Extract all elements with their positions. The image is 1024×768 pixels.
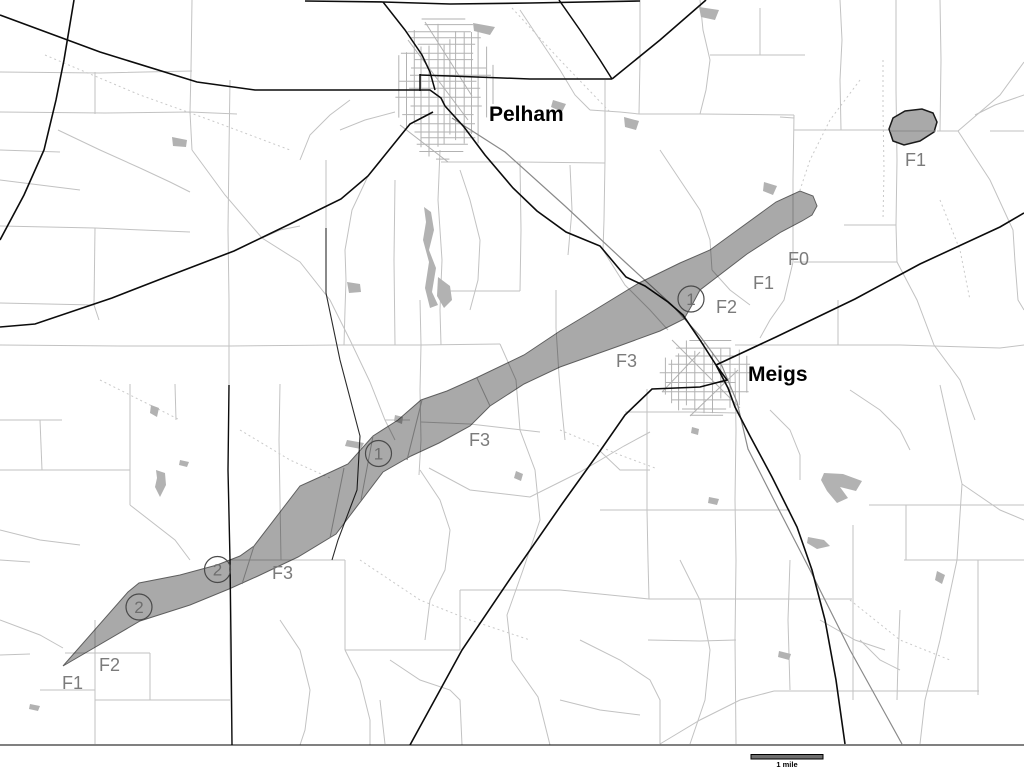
svg-text:2: 2	[213, 561, 222, 580]
svg-text:F2: F2	[716, 297, 737, 317]
svg-text:Pelham: Pelham	[489, 103, 564, 126]
svg-text:F3: F3	[469, 430, 490, 450]
svg-text:F0: F0	[788, 249, 809, 269]
svg-text:F1: F1	[62, 673, 83, 693]
svg-text:F1: F1	[905, 150, 926, 170]
svg-text:1 mile: 1 mile	[776, 760, 797, 768]
svg-text:Meigs: Meigs	[748, 363, 808, 386]
svg-text:F3: F3	[272, 563, 293, 583]
svg-text:F2: F2	[99, 655, 120, 675]
svg-text:1: 1	[686, 290, 695, 309]
svg-text:2: 2	[134, 598, 143, 617]
svg-text:1: 1	[374, 445, 383, 464]
svg-text:F1: F1	[753, 273, 774, 293]
svg-text:F3: F3	[616, 351, 637, 371]
